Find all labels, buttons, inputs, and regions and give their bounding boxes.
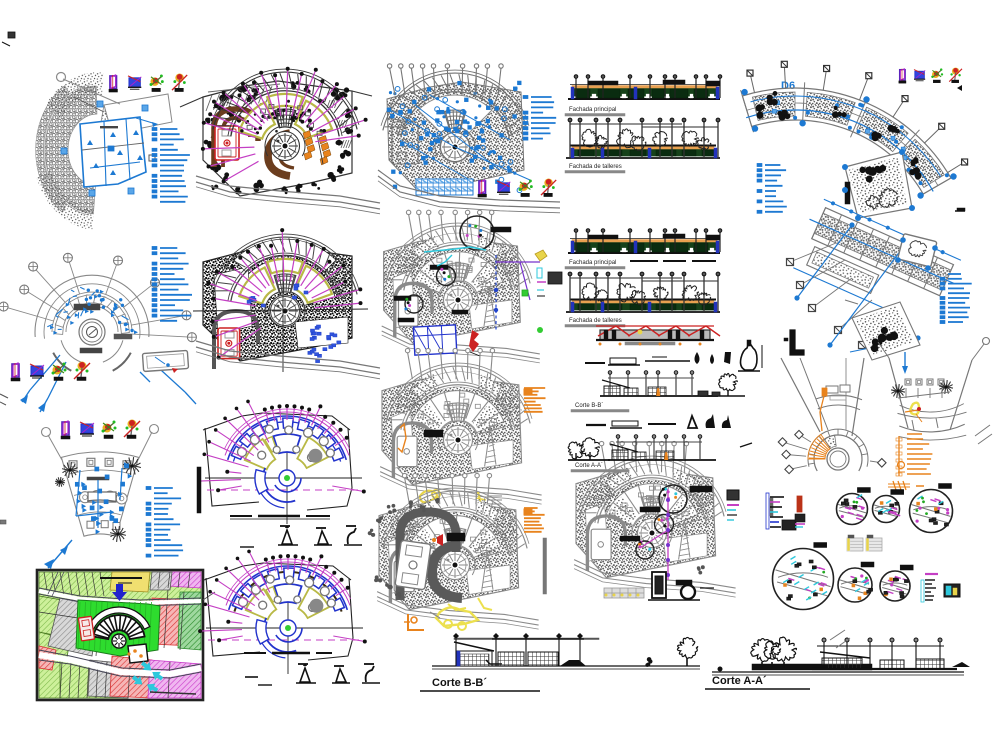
svg-text:Fachada de talleres: Fachada de talleres (569, 164, 622, 170)
svg-text:Corte A-A´: Corte A-A´ (712, 675, 767, 687)
svg-text:Fachada de talleres: Fachada de talleres (569, 318, 622, 324)
svg-text:D6: D6 (781, 80, 795, 92)
svg-text:Fachada principal: Fachada principal (569, 260, 616, 266)
svg-text:Corte A-A´: Corte A-A´ (575, 463, 603, 469)
svg-text:Corte B-B´: Corte B-B´ (432, 677, 487, 689)
svg-text:Corte B-B´: Corte B-B´ (575, 403, 603, 409)
svg-text:Fachada principal: Fachada principal (569, 107, 616, 113)
